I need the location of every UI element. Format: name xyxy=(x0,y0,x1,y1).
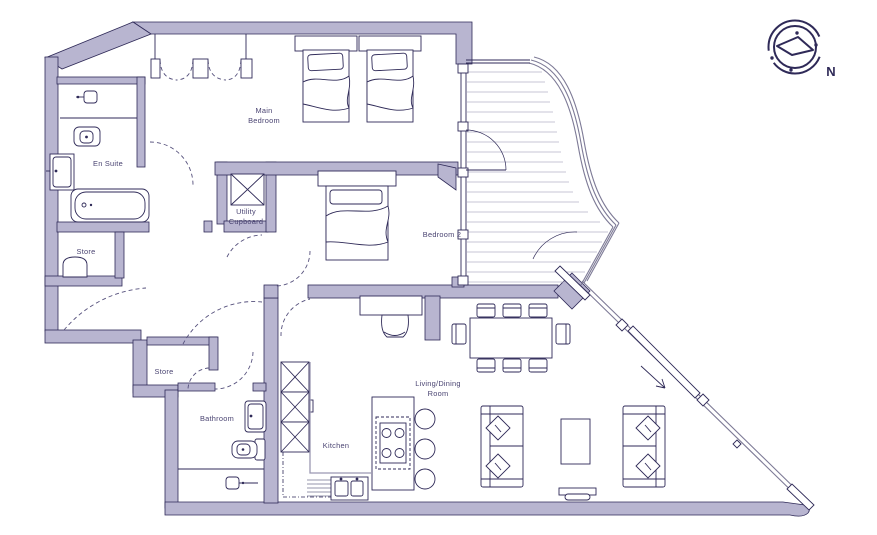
bedroom-2-label: Bedroom 2 xyxy=(423,230,461,239)
compass-needle xyxy=(777,37,813,55)
single-bed-2 xyxy=(359,36,421,122)
worktop-edge xyxy=(310,362,371,473)
main-bedroom-label-line1: Main xyxy=(255,106,272,115)
bedroom-2: Bedroom 2 xyxy=(318,171,461,260)
tv-unit xyxy=(559,488,596,500)
outer-walls xyxy=(45,22,809,516)
utility-label-line1: Utility xyxy=(236,207,256,216)
basin-icon xyxy=(245,401,266,432)
floor-plan-drawing: Main Bedroom En Suite xyxy=(0,0,877,535)
en-suite-label: En Suite xyxy=(93,159,123,168)
bar-stools xyxy=(415,409,435,489)
compass-icon: N xyxy=(769,21,836,80)
store-lower-label: Store xyxy=(155,367,174,376)
balcony xyxy=(466,57,619,285)
living-dining-label-line2: Room xyxy=(428,389,449,398)
balcony-door xyxy=(466,130,506,170)
store-lower: Store xyxy=(155,367,174,376)
dining-table xyxy=(452,304,570,372)
wardrobe-doors xyxy=(151,34,252,78)
shower-icon xyxy=(226,477,258,489)
kitchen-island xyxy=(372,397,414,490)
sofa-right xyxy=(623,406,665,487)
living-dining-label-line1: Living/Dining xyxy=(415,379,461,388)
single-bed-1 xyxy=(295,36,357,122)
kitchen-label: Kitchen xyxy=(323,441,349,450)
sofa-left xyxy=(481,406,523,487)
utility-cupboard: Utility Cupboard xyxy=(229,174,264,226)
double-bed xyxy=(318,171,396,260)
balcony-decking xyxy=(467,72,608,282)
en-suite: En Suite xyxy=(46,91,149,222)
bathtub-icon xyxy=(71,189,149,222)
utility-label-line2: Cupboard xyxy=(229,217,263,226)
balcony-railing xyxy=(466,57,619,285)
kitchen: Kitchen xyxy=(281,362,435,500)
toilet-icon xyxy=(232,439,265,460)
appliance-icon xyxy=(231,174,264,205)
desk xyxy=(360,296,422,337)
hob-icon xyxy=(380,423,406,463)
bathroom-label: Bathroom xyxy=(200,414,234,423)
store-upper-label: Store xyxy=(77,247,96,256)
coffee-table xyxy=(561,419,590,464)
basin-icon xyxy=(46,154,74,190)
slide-direction-arrow xyxy=(641,366,665,388)
toilet-icon xyxy=(74,127,100,146)
floor-plan-page: Main Bedroom En Suite xyxy=(0,0,877,535)
bathroom: Bathroom xyxy=(178,401,266,489)
diagonal-glass-wall xyxy=(555,266,814,510)
balcony-end-door-arc xyxy=(533,232,577,259)
tall-units xyxy=(281,362,313,452)
main-bedroom-label-line2: Bedroom xyxy=(248,116,280,125)
sink-icon xyxy=(307,477,368,500)
main-bedroom: Main Bedroom xyxy=(151,34,421,125)
shower-icon xyxy=(76,91,97,103)
store-upper: Store xyxy=(63,247,95,277)
cylinder-icon xyxy=(63,257,87,277)
compass-north-label: N xyxy=(826,64,835,79)
